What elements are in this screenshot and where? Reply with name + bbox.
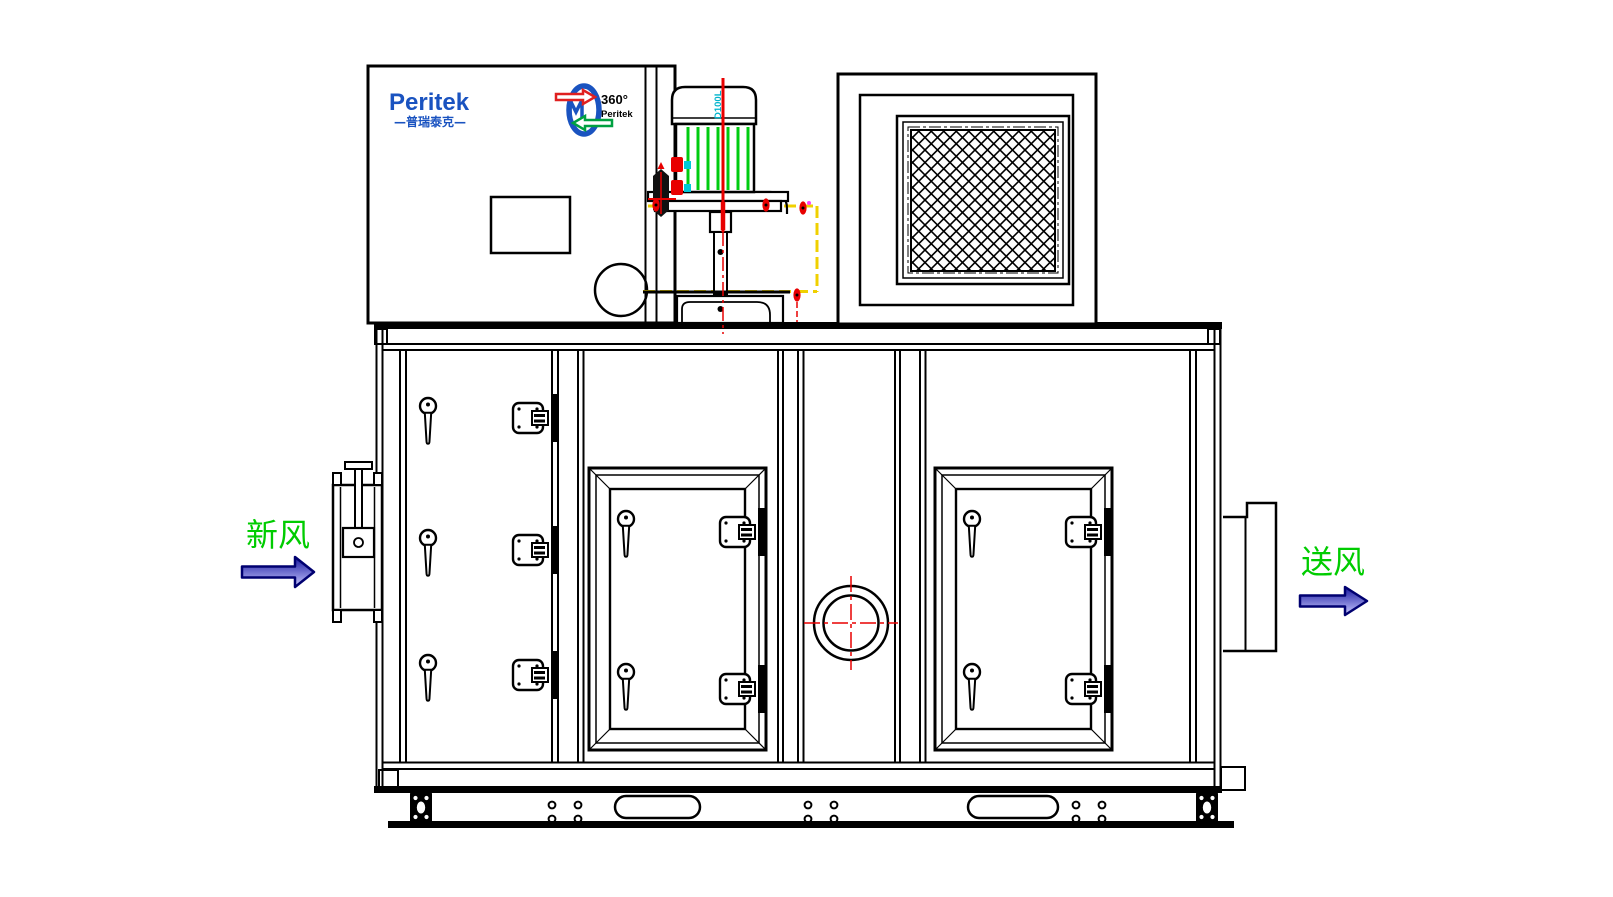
panel-latch[interactable] (513, 526, 559, 574)
base-frame (388, 792, 1234, 828)
mullion-2 (778, 350, 804, 762)
inlet-tab (374, 473, 382, 485)
inlet-tab (374, 610, 382, 622)
left-access-panel[interactable] (420, 394, 559, 701)
stand-post (714, 232, 727, 294)
fresh-air-inlet (333, 462, 382, 622)
right-service-door[interactable] (935, 468, 1112, 750)
outlet-duct (1223, 503, 1276, 651)
clip-sensor (684, 161, 691, 169)
damper-rod[interactable] (355, 467, 362, 528)
magenta-mark (807, 201, 811, 205)
rotor-badge-name: Peritek (601, 109, 633, 120)
cabinet-inner-bottom (383, 763, 1214, 770)
stand-pedestal (677, 296, 783, 323)
motor-cooling-fins (688, 127, 748, 190)
inlet-tab (333, 610, 341, 622)
fresh-air-label: 新风 (246, 516, 310, 554)
rotor-badge-degree: 360° (601, 92, 628, 107)
base-foot-bracket (1196, 792, 1218, 823)
drawing-canvas: Peritek —普瑞泰克— 360° Peritek (0, 0, 1613, 897)
filter-box (838, 74, 1096, 324)
peritek-logo: Peritek —普瑞泰克— (389, 89, 470, 129)
mullion-3 (895, 350, 926, 762)
motor-clip-icon (671, 180, 683, 195)
supply-air-label: 送风 (1301, 543, 1365, 581)
middle-service-door[interactable] (589, 468, 766, 750)
supply-air-outlet (1223, 503, 1276, 651)
damper-shaft (354, 538, 363, 547)
filter-mesh-grille (911, 130, 1055, 271)
sight-glass (804, 576, 898, 670)
panel-handle[interactable] (420, 655, 436, 701)
shaft-coupling (710, 212, 731, 232)
motor-base-plate-lower (655, 201, 781, 211)
panel-latch[interactable] (513, 394, 559, 442)
anchor-holes (549, 802, 582, 823)
motor-clip-icon (671, 157, 683, 172)
cabinet-inner-top (383, 344, 1214, 350)
inlet-tab (333, 473, 341, 485)
red-bolt-icon (799, 201, 806, 214)
corner-notch-bottom-right (1221, 767, 1245, 790)
base-rail (388, 821, 1234, 828)
cabinet-body (374, 322, 1245, 793)
peritek-logo-text: Peritek (389, 89, 470, 116)
anchor-holes (805, 802, 838, 823)
cabinet-bottom-rail (374, 786, 1222, 793)
forklift-slot (615, 796, 700, 818)
red-bolt-icon (762, 198, 769, 211)
forklift-slot (968, 796, 1058, 818)
cabinet-inner-right (1190, 350, 1196, 762)
supply-air-arrow-icon (1300, 587, 1367, 615)
peritek-logo-subtext: —普瑞泰克— (394, 114, 466, 129)
anchor-holes (1073, 802, 1106, 823)
panel-latch[interactable] (513, 651, 559, 699)
base-foot-bracket (410, 792, 432, 823)
damper-rod-handle[interactable] (345, 462, 372, 469)
panel-handle[interactable] (420, 398, 436, 444)
red-bolt-icon (652, 198, 659, 211)
clip-sensor (684, 184, 691, 192)
red-bolt-icon (793, 288, 800, 301)
cabinet-inner-left (400, 350, 406, 762)
panel-handle[interactable] (420, 530, 436, 576)
fresh-air-arrow-icon (242, 557, 314, 587)
cabinet-right-edge (1215, 329, 1221, 786)
